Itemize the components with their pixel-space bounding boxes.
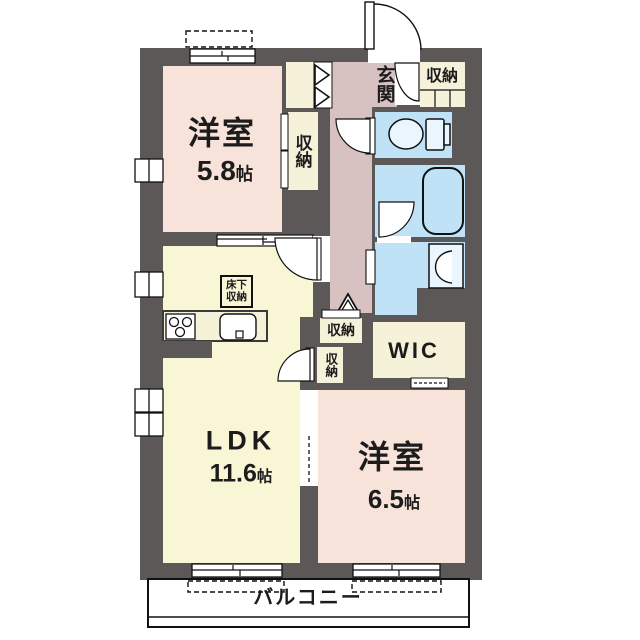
toilet-icon <box>389 119 450 150</box>
hall-closet-folding-door-icon <box>314 62 332 108</box>
washbasin-icon <box>429 244 463 288</box>
hall-closet-door <box>322 310 360 318</box>
bathtub-icon <box>423 168 463 234</box>
washroom-door <box>366 250 375 284</box>
ldk-door <box>275 236 330 282</box>
ldk-closet-label: 収納 <box>324 353 337 378</box>
entrance-closet-cabinet <box>420 90 465 107</box>
wic-door <box>411 378 448 388</box>
toilet-door <box>336 118 375 154</box>
ldk-size: 11.6帖 <box>210 462 273 487</box>
wic-label: WIC <box>388 340 440 362</box>
bedroom-top-label: 洋室 <box>188 117 256 149</box>
bedroom-top-window <box>186 31 255 63</box>
floor-plan: 洋室 5.8帖 LDK 11.6帖 洋室 6.5帖 玄関 収納 収納 収納 収納… <box>0 0 640 640</box>
ldk-closet-door <box>278 348 314 381</box>
hall-closet-label: 収納 <box>327 323 355 337</box>
entrance-label: 玄関 <box>375 65 394 103</box>
bedroom-bottom-door <box>300 390 318 486</box>
bedroom-top-closet-label: 収納 <box>294 134 311 168</box>
entrance-closet-label: 収納 <box>426 69 458 85</box>
side-window-icons <box>135 159 163 436</box>
kitchen-counter <box>160 311 267 358</box>
bath-door <box>377 202 414 243</box>
plan-symbols <box>0 0 640 640</box>
balcony-label: バルコニー <box>253 588 363 608</box>
underfloor-storage-label: 床下 収納 <box>226 279 247 303</box>
stove-icon <box>166 314 195 339</box>
bedroom-top-size: 5.8帖 <box>197 157 253 185</box>
ldk-label: LDK <box>206 428 277 455</box>
bedroom-bottom-size: 6.5帖 <box>368 486 420 512</box>
bedroom-top-closet-doors <box>281 114 288 188</box>
bedroom-bottom-balcony-window <box>352 564 441 592</box>
bedroom-bottom-label: 洋室 <box>358 441 426 473</box>
